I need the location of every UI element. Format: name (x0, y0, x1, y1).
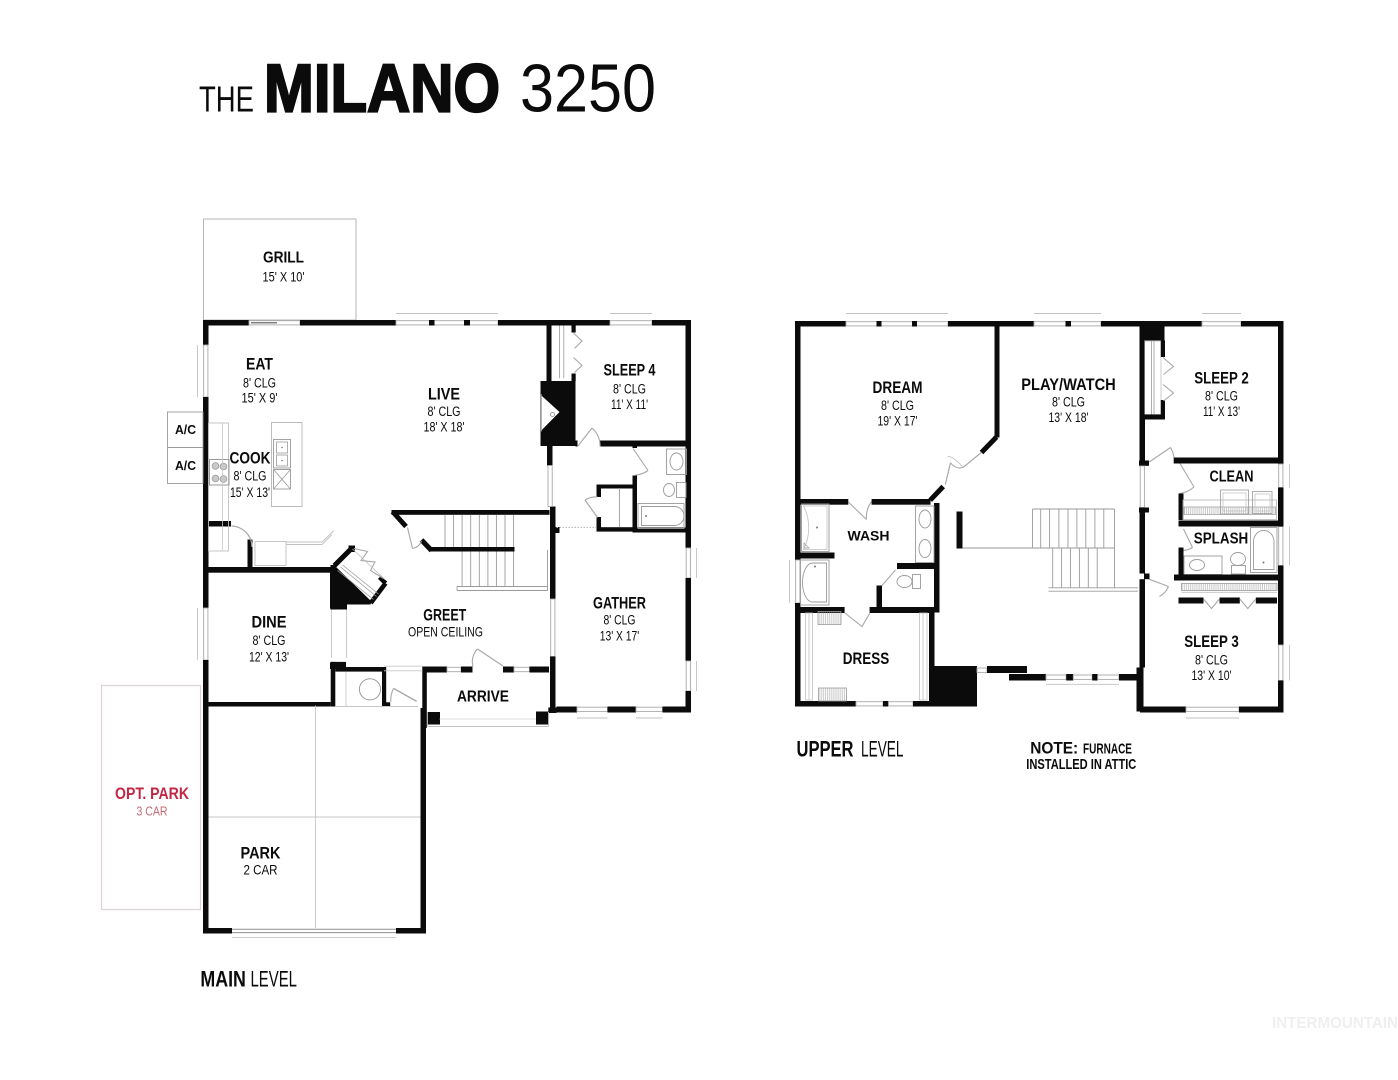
svg-text:15' X 10': 15' X 10' (263, 270, 305, 285)
svg-text:SLEEP 2: SLEEP 2 (1194, 369, 1249, 388)
svg-text:13' X 10': 13' X 10' (1192, 668, 1232, 683)
svg-text:MAIN: MAIN (200, 967, 246, 992)
svg-text:FURNACE: FURNACE (1083, 741, 1132, 758)
svg-text:15' X 9': 15' X 9' (242, 391, 278, 406)
svg-text:OPT. PARK: OPT. PARK (115, 785, 189, 803)
svg-text:A/C: A/C (175, 423, 196, 437)
svg-text:UPPER: UPPER (797, 737, 854, 762)
svg-text:8' CLG: 8' CLG (1052, 395, 1085, 410)
svg-text:COOK: COOK (230, 449, 272, 468)
svg-text:8' CLG: 8' CLG (428, 404, 461, 419)
svg-text:8' CLG: 8' CLG (234, 469, 267, 484)
svg-text:EAT: EAT (246, 355, 273, 374)
svg-text:8' CLG: 8' CLG (1205, 389, 1238, 404)
svg-text:GRILL: GRILL (263, 250, 304, 267)
svg-text:OPEN CEILING: OPEN CEILING (408, 624, 483, 640)
svg-text:8' CLG: 8' CLG (253, 633, 286, 648)
svg-text:NOTE:: NOTE: (1030, 740, 1078, 758)
svg-text:CLEAN: CLEAN (1210, 469, 1254, 486)
svg-text:15' X 13': 15' X 13' (230, 485, 270, 500)
svg-text:DINE: DINE (252, 613, 287, 632)
svg-text:LEVEL: LEVEL (251, 967, 298, 992)
svg-text:19' X 17': 19' X 17' (878, 414, 918, 429)
svg-text:18' X 18': 18' X 18' (424, 420, 465, 435)
svg-text:LIVE: LIVE (428, 385, 460, 404)
svg-text:3 CAR: 3 CAR (137, 804, 168, 819)
svg-text:2 CAR: 2 CAR (244, 863, 278, 878)
svg-text:DREAM: DREAM (873, 378, 923, 397)
svg-text:WASH: WASH (848, 528, 890, 544)
svg-text:11' X 13': 11' X 13' (1203, 404, 1240, 419)
svg-text:THE: THE (199, 79, 254, 120)
svg-text:8' CLG: 8' CLG (243, 376, 276, 391)
svg-text:GATHER: GATHER (593, 594, 646, 613)
svg-text:SLEEP 3: SLEEP 3 (1184, 632, 1239, 651)
svg-text:3250: 3250 (520, 51, 656, 127)
svg-text:13' X 17': 13' X 17' (600, 629, 640, 644)
svg-text:ARRIVE: ARRIVE (457, 689, 509, 706)
svg-text:8' CLG: 8' CLG (613, 382, 646, 397)
svg-text:LEVEL: LEVEL (861, 737, 904, 762)
svg-text:A/C: A/C (175, 459, 196, 473)
svg-text:MILANO: MILANO (264, 51, 500, 127)
svg-text:INTERMOUNTAIN: INTERMOUNTAIN (1272, 1015, 1398, 1032)
svg-text:13' X 18': 13' X 18' (1049, 410, 1089, 425)
svg-text:INSTALLED IN ATTIC: INSTALLED IN ATTIC (1026, 756, 1136, 773)
svg-text:PLAY/WATCH: PLAY/WATCH (1021, 375, 1116, 394)
svg-text:12' X 13': 12' X 13' (249, 650, 289, 665)
svg-text:8' CLG: 8' CLG (1195, 653, 1228, 668)
svg-text:8' CLG: 8' CLG (604, 613, 636, 628)
svg-text:PARK: PARK (241, 844, 282, 863)
svg-text:8' CLG: 8' CLG (881, 398, 914, 413)
svg-text:GREET: GREET (423, 606, 466, 625)
svg-text:SPLASH: SPLASH (1194, 531, 1249, 548)
svg-text:DRESS: DRESS (843, 650, 890, 668)
svg-text:SLEEP 4: SLEEP 4 (604, 361, 656, 380)
svg-text:11' X 11': 11' X 11' (611, 397, 648, 412)
